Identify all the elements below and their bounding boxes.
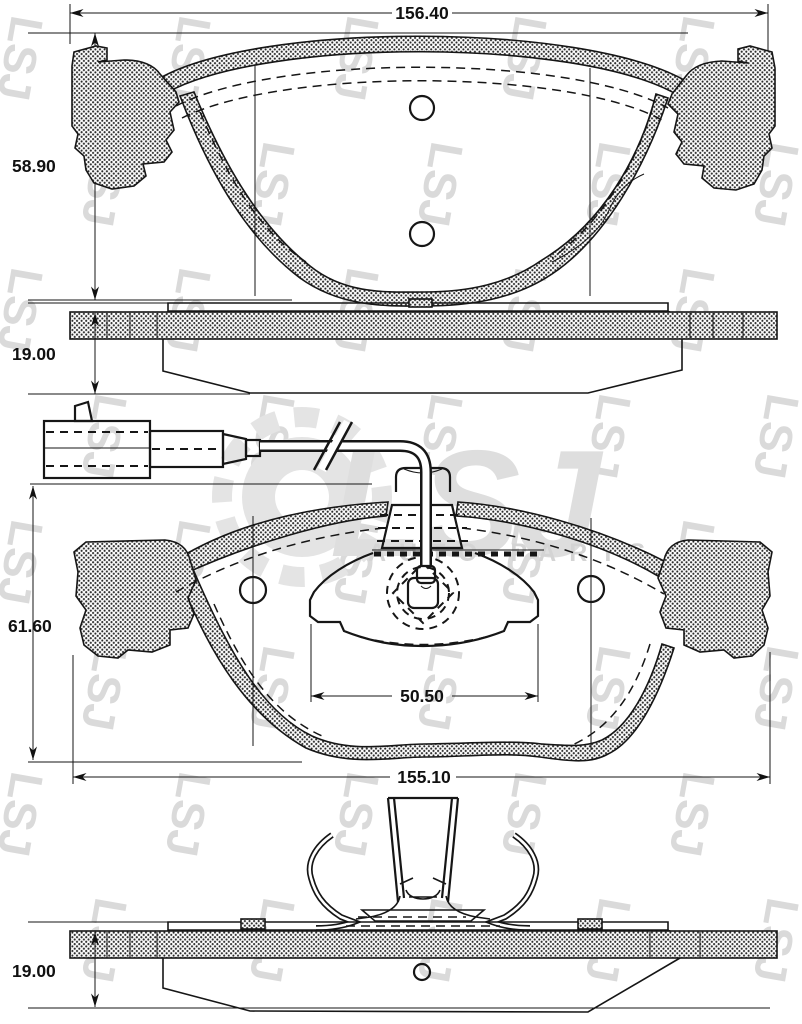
- backplate-bar: [70, 931, 777, 958]
- watermark-tile: LSJ: [660, 768, 726, 860]
- brake-pad-technical-drawing: LSJLSJLSJLSJLSJLSJLSJLSJLSJLSJLSJLSJLSJL…: [0, 0, 802, 1024]
- dim-label-width-outer: 156.40: [395, 3, 449, 23]
- dim-label-thickness-inner: 19.00: [12, 961, 56, 981]
- watermark-tile: LSJ: [156, 1020, 222, 1024]
- watermark-tile: LSJ: [408, 138, 474, 230]
- pad-hole: [410, 96, 434, 120]
- shim-tab: [578, 919, 602, 929]
- watermark-tile: LSJ: [0, 516, 53, 608]
- watermark-tile: LSJ: [156, 768, 222, 860]
- watermark-tile: LSJ: [660, 264, 726, 356]
- watermark-tile: LSJ: [744, 390, 802, 482]
- drawing-canvas: LSJLSJLSJLSJLSJLSJLSJLSJLSJLSJLSJLSJLSJL…: [0, 0, 802, 1024]
- dim-label-width-inner: 155.10: [397, 767, 451, 787]
- friction-profile: [163, 339, 682, 393]
- watermark-tile: LSJ: [0, 12, 53, 104]
- shim-tab: [409, 299, 432, 307]
- watermark-tile: LSJ: [0, 1020, 53, 1024]
- dim-label-height-inner: 61.60: [8, 616, 52, 636]
- left-ear: [74, 540, 196, 658]
- view-pad-front-outer: 156.40 58.90: [12, 3, 775, 306]
- watermark-tile: LSJ: [0, 264, 53, 356]
- dim-label-thickness-outer: 19.00: [12, 344, 56, 364]
- watermark-tile: LSJ: [324, 12, 390, 104]
- dim-label-shim-width: 50.50: [400, 686, 444, 706]
- backplate-bar: [70, 312, 777, 339]
- right-ear: [658, 540, 772, 658]
- pad-hole: [410, 222, 434, 246]
- watermark-tile: LSJ: [324, 768, 390, 860]
- shim-tab: [241, 919, 265, 929]
- clip-tower-marks: [400, 878, 446, 884]
- dim-label-height-outer: 58.90: [12, 156, 56, 176]
- clip-tower: [388, 798, 458, 902]
- watermark-tile: LSJ: [492, 1020, 558, 1024]
- friction-dashed-arc: [176, 67, 668, 108]
- view-pad-front-inner: 61.60: [8, 468, 772, 787]
- watermark-tile: LSJ: [0, 768, 53, 860]
- watermark-tile: LSJ: [660, 1020, 726, 1024]
- watermark-tile: LSJ: [324, 1020, 390, 1024]
